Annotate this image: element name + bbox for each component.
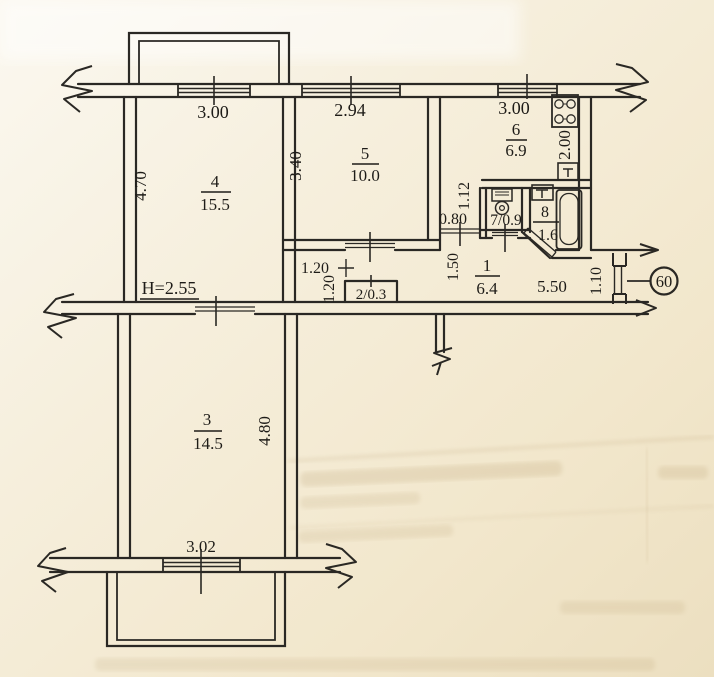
scanned-floorplan-page: 60 4 15.5 5 10.0 6 6.9 7/0.9 8 1.6 1 — [0, 0, 714, 677]
dim-window-room3: 3.02 — [186, 537, 216, 556]
dim-hall-width: 1.50 — [445, 253, 462, 281]
dim-closet-width: 1.20 — [301, 260, 329, 277]
room4-area: 15.5 — [200, 195, 230, 214]
dim-window-room4: 3.00 — [197, 102, 229, 122]
hall-number: 1 — [483, 256, 492, 275]
apartment-number: 60 — [656, 272, 673, 291]
dim-entry-door-width: 1.10 — [588, 267, 605, 295]
dim-window-kitchen: 3.00 — [498, 98, 530, 118]
wc-label: 7/0.9 — [490, 212, 522, 229]
room5-area: 10.0 — [350, 166, 380, 185]
bath-number: 8 — [541, 204, 549, 221]
room3-number: 3 — [203, 410, 212, 429]
dim-closet-depth: 1.20 — [321, 275, 338, 303]
floorplan-svg: 60 4 15.5 5 10.0 6 6.9 7/0.9 8 1.6 1 — [0, 0, 714, 677]
dim-kitchen-door-width: 0.80 — [439, 211, 467, 228]
hall-area: 6.4 — [476, 279, 498, 298]
paper-highlight — [0, 0, 520, 60]
room4-number: 4 — [211, 172, 220, 191]
kitchen-area: 6.9 — [505, 141, 526, 160]
height-note: Н=2.55 — [140, 278, 199, 299]
dim-room5-depth: 3.40 — [286, 151, 305, 181]
bath-area: 1.6 — [538, 227, 558, 244]
closet-label: 2/0.3 — [356, 287, 386, 303]
room5-number: 5 — [361, 144, 370, 163]
room3-area: 14.5 — [193, 434, 223, 453]
dim-room4-depth: 4.70 — [131, 171, 150, 201]
dim-kitchen-depth: 2.00 — [555, 130, 574, 160]
dim-hall-length: 5.50 — [537, 277, 567, 296]
closet-number-area: 2/0.3 — [356, 287, 386, 303]
ceiling-height-note: Н=2.55 — [142, 278, 197, 298]
kitchen-number: 6 — [512, 120, 521, 139]
dim-window-room5: 2.94 — [334, 100, 366, 120]
wc-number-area: 7/0.9 — [490, 212, 522, 229]
dim-niche-depth: 1.12 — [456, 182, 473, 210]
dim-room3-depth: 4.80 — [255, 416, 274, 446]
